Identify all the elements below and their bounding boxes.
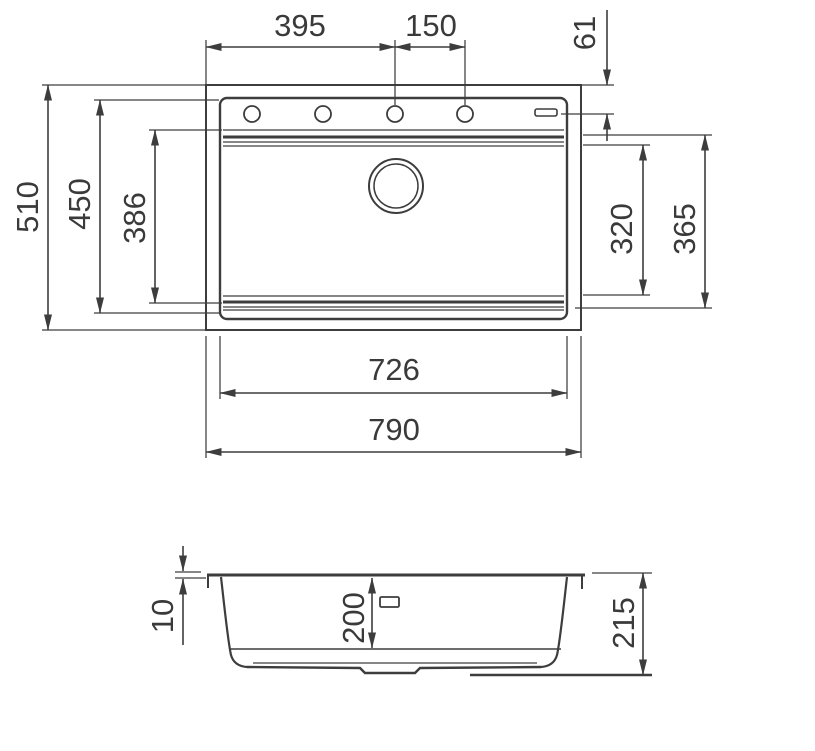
sink-technical-drawing: ’ bbox=[0, 0, 815, 751]
faucet-hole bbox=[244, 106, 260, 122]
dim-label: 510 bbox=[10, 181, 45, 233]
faucet-hole bbox=[387, 106, 403, 122]
dim-hole-spacing: 150 bbox=[395, 8, 465, 105]
overflow-slot-section bbox=[380, 597, 399, 607]
dim-label: 450 bbox=[62, 178, 97, 230]
dim-label: 200 bbox=[336, 592, 371, 644]
dim-label: 395 bbox=[274, 8, 326, 43]
dim-basin-inner-right: 320 bbox=[583, 145, 650, 295]
dim-label: 386 bbox=[117, 192, 152, 244]
dim-label: 320 bbox=[604, 203, 639, 255]
dim-label: 150 bbox=[405, 8, 457, 43]
faucet-hole bbox=[315, 106, 331, 122]
dim-faucet-offset: 395 bbox=[206, 8, 395, 105]
faucet-holes bbox=[244, 106, 473, 122]
dim-label: 10 bbox=[145, 599, 180, 633]
top-view: 395 150 61 510 450 bbox=[10, 8, 712, 458]
dim-rim-height: 10 bbox=[145, 546, 206, 645]
overflow-slot bbox=[535, 109, 557, 116]
bottom-groove-lines bbox=[223, 296, 564, 310]
dim-basin-depth: 200 bbox=[336, 578, 372, 648]
right-wall bbox=[541, 577, 567, 667]
dim-edge-to-hole: 61 bbox=[561, 10, 614, 141]
basin-bottom bbox=[247, 667, 541, 673]
deck-groove-lines bbox=[223, 130, 564, 146]
technical-drawing-page: ’ bbox=[0, 0, 815, 751]
faucet-hole bbox=[457, 106, 473, 122]
dim-label: 726 bbox=[368, 352, 420, 387]
dim-label: 365 bbox=[667, 203, 702, 255]
drain-hole bbox=[369, 159, 423, 213]
dim-label: 61 bbox=[567, 16, 602, 50]
dim-bowl-width: 726 bbox=[220, 336, 567, 399]
stray-mark: ’ bbox=[120, 0, 124, 14]
dim-label: 790 bbox=[368, 412, 420, 447]
section-view: 10 200 215 bbox=[145, 546, 652, 675]
dim-label: 215 bbox=[606, 597, 641, 649]
left-wall bbox=[221, 577, 247, 667]
dim-overall-depth: 510 bbox=[10, 85, 206, 330]
